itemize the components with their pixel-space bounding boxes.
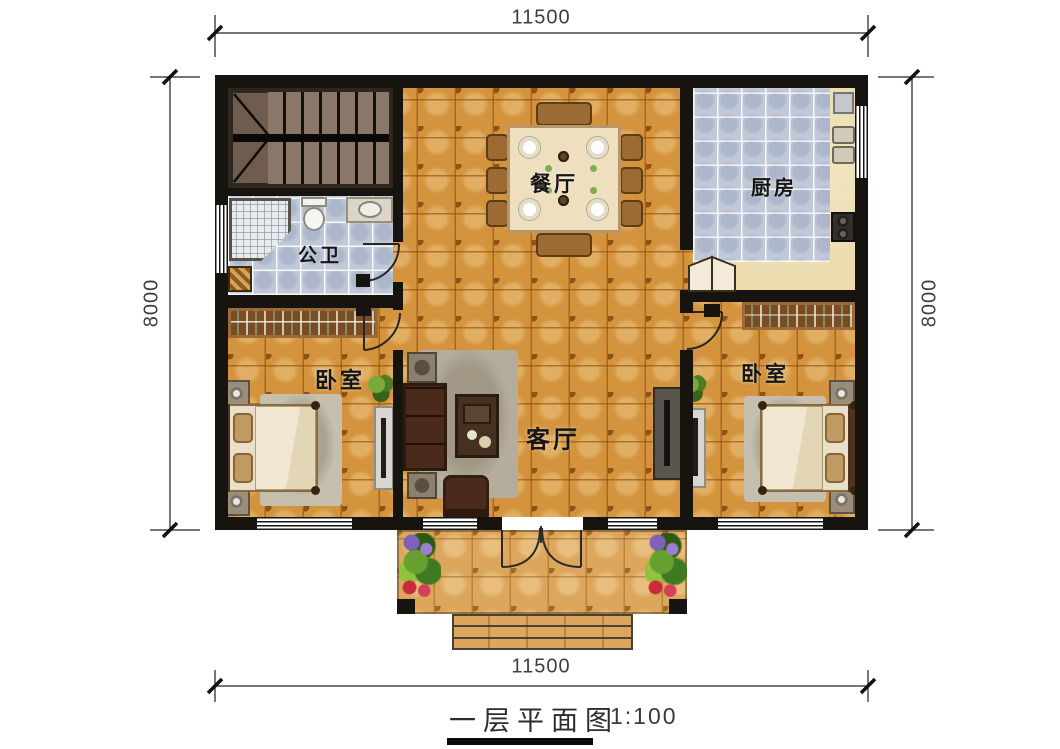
interior-wall-hall-right [680,88,693,250]
dining-chair-right [620,134,643,161]
entry-steps [452,614,633,650]
side-table [407,472,437,499]
stair-flight-lower [268,142,389,184]
pillow [825,413,845,443]
room-label-dining: 餐厅 [530,168,578,198]
dimension-bottom: 11500 [511,656,570,679]
interior-wall-hall-left [393,88,403,242]
lamp [835,493,848,506]
bath-mat [228,266,252,292]
floor-plan-canvas: 餐厅 厨房 公卫 卧室 卧室 客厅 11500 11500 8000 8000 … [0,0,1060,749]
coffee-table [455,394,499,458]
pillow [233,453,253,483]
bathroom-basin [358,201,382,218]
step-edge [452,637,633,639]
teacup [467,430,477,440]
dimension-left: 8000 [141,279,164,328]
blanket [255,406,316,490]
tv [664,400,670,466]
dimension-top: 11500 [511,7,570,30]
dining-chair-left [486,134,509,161]
bed-post [311,401,320,410]
dining-chair-top [536,102,592,126]
flower-bed [399,533,441,597]
room-label-kitchen: 厨房 [751,172,797,201]
window-bedroom-right [718,517,823,530]
interior-wall-bathroom-bottom [215,295,403,308]
window-kitchen-right [855,106,868,178]
stair-flight-upper [268,92,389,134]
bed-post [311,486,320,495]
plan-scale: 1:100 [610,703,678,730]
dimension-right: 8000 [919,279,942,328]
refrigerator [833,92,854,114]
sofa [403,383,447,471]
bed-left [221,404,318,492]
tv-cabinet-living [653,387,682,480]
place-setting [587,199,608,220]
room-label-living: 客厅 [526,420,580,455]
tv [381,418,386,478]
side-table [407,352,437,383]
dining-chair-bottom [536,233,592,257]
room-label-bedroom-right: 卧室 [741,358,789,388]
porch-pier [669,599,687,614]
porch-pier [397,599,415,614]
blanket [762,406,823,490]
teacup [479,436,491,448]
side-dish [590,165,597,172]
room-label-bathroom: 公卫 [298,241,342,268]
bathroom-sink-counter [346,197,393,223]
wardrobe-right [742,302,855,330]
lamp [230,387,243,400]
window-living-left [423,517,477,530]
exterior-wall-top [215,75,868,88]
title-underline [447,738,593,745]
potted-plant [366,374,396,404]
interior-wall-hall-left [393,350,403,517]
bed-post [758,401,767,410]
side-dish [590,187,597,194]
place-setting [519,199,540,220]
wardrobe-left [228,308,378,338]
dining-chair-left [486,200,509,227]
toilet [301,197,327,207]
flower-bed [645,533,687,597]
interior-wall-kitchen-bottom [680,290,868,302]
tv-stand-left-bedroom [374,406,394,490]
armchair [443,475,489,519]
room-label-bedroom-left: 卧室 [315,363,365,395]
pillow [233,413,253,443]
bed-post [758,486,767,495]
place-setting [519,137,540,158]
stove-burner [837,228,849,240]
serving-bowl [558,151,569,162]
window-bathroom-left [215,205,228,273]
plan-title: 一层平面图 [449,699,619,738]
window-living-right [608,517,657,530]
dining-chair-left [486,167,509,194]
step-edge [452,625,633,627]
window-bedroom-left [257,517,352,530]
stove [831,212,855,242]
stair-landing-divider [233,134,389,142]
kitchen-sink-bowl2 [832,146,855,164]
dining-chair-right [620,167,643,194]
lamp [835,387,848,400]
bed-right [760,404,857,492]
place-setting [587,137,608,158]
dining-chair-right [620,200,643,227]
pillow [825,453,845,483]
toilet-bowl [303,207,325,231]
interior-wall-stairs-bottom [215,188,403,196]
stove-burner [837,215,849,227]
tv [693,418,698,476]
tray [463,404,491,424]
staircase [228,88,393,188]
lamp [230,495,243,508]
kitchen-sink [832,126,855,144]
interior-wall-hall-right [680,350,693,517]
